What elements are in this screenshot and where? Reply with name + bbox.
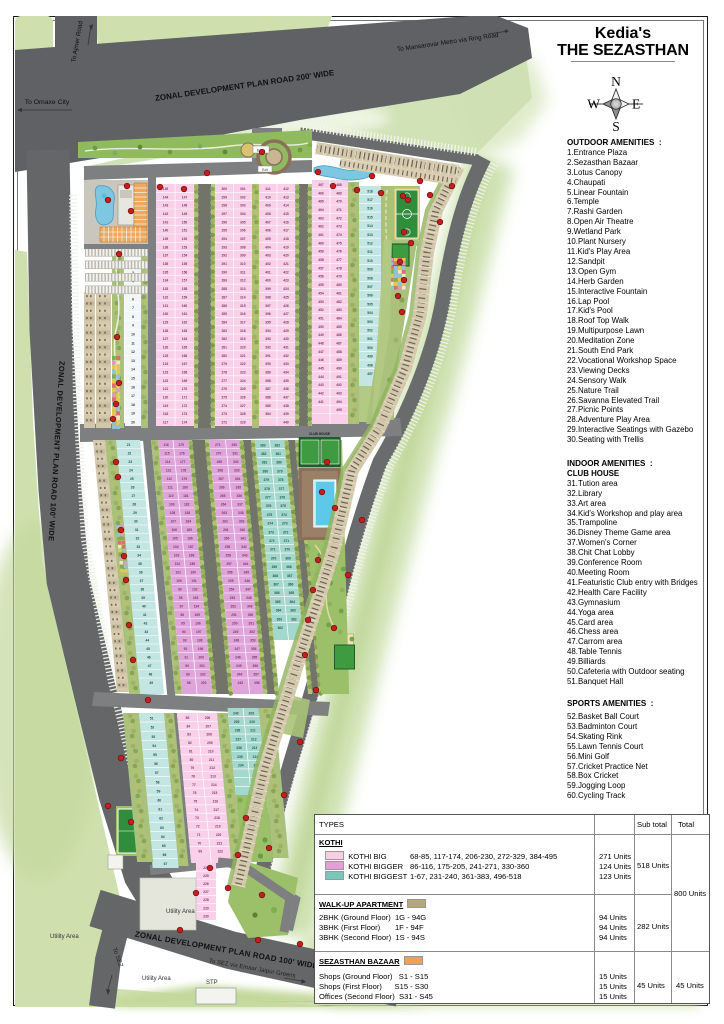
svg-text:508: 508: [367, 276, 373, 280]
svg-text:185: 185: [186, 528, 192, 532]
svg-text:336: 336: [236, 494, 242, 498]
svg-text:71: 71: [197, 833, 201, 837]
svg-text:39: 39: [141, 596, 145, 600]
svg-text:63: 63: [160, 826, 164, 830]
svg-text:199: 199: [198, 647, 204, 651]
svg-text:378: 378: [264, 487, 270, 491]
svg-text:151: 151: [182, 229, 188, 233]
svg-text:Exit: Exit: [262, 168, 268, 172]
svg-text:512: 512: [367, 242, 373, 246]
svg-text:277: 277: [221, 379, 227, 383]
svg-text:35: 35: [138, 562, 142, 566]
svg-text:24: 24: [129, 469, 133, 473]
svg-text:230: 230: [203, 914, 209, 918]
svg-text:378: 378: [278, 478, 284, 482]
svg-text:165: 165: [182, 346, 188, 350]
svg-text:332: 332: [233, 460, 239, 464]
svg-text:494: 494: [336, 400, 342, 404]
svg-text:125: 125: [163, 354, 169, 358]
svg-text:106: 106: [171, 528, 177, 532]
svg-text:236: 236: [236, 746, 242, 750]
svg-text:60: 60: [157, 799, 161, 803]
svg-text:44: 44: [145, 639, 149, 643]
svg-text:29: 29: [133, 511, 137, 515]
svg-text:64: 64: [161, 835, 165, 839]
svg-text:411: 411: [265, 187, 270, 191]
svg-text:100: 100: [176, 579, 182, 583]
svg-text:450: 450: [318, 325, 324, 329]
svg-text:244: 244: [237, 673, 243, 677]
svg-text:275: 275: [221, 396, 227, 400]
svg-text:180: 180: [182, 486, 188, 490]
svg-text:28: 28: [132, 503, 136, 507]
svg-text:467: 467: [318, 183, 324, 187]
svg-text:267: 267: [218, 477, 224, 481]
svg-text:141: 141: [163, 220, 169, 224]
svg-text:109: 109: [169, 503, 175, 507]
svg-text:159: 159: [182, 295, 188, 299]
svg-text:128: 128: [163, 329, 169, 333]
svg-text:314: 314: [240, 295, 246, 299]
svg-text:503: 503: [367, 320, 373, 324]
svg-text:440: 440: [283, 421, 289, 425]
svg-text:517: 517: [367, 198, 373, 202]
svg-text:214: 214: [211, 783, 217, 787]
svg-text:219: 219: [215, 825, 221, 829]
svg-text:328: 328: [240, 412, 246, 416]
svg-text:13: 13: [131, 359, 135, 363]
svg-text:245: 245: [236, 664, 242, 668]
svg-text:195: 195: [194, 613, 200, 617]
svg-text:37: 37: [140, 579, 144, 583]
svg-text:475: 475: [336, 241, 342, 245]
svg-text:186: 186: [187, 537, 193, 541]
svg-text:188: 188: [189, 554, 195, 558]
svg-text:268: 268: [218, 469, 224, 473]
svg-text:518: 518: [367, 189, 373, 193]
svg-text:31: 31: [135, 528, 139, 532]
svg-text:251: 251: [231, 613, 237, 617]
svg-text:9: 9: [132, 324, 134, 328]
svg-text:210: 210: [249, 720, 255, 724]
svg-text:471: 471: [336, 208, 342, 212]
svg-text:381: 381: [275, 452, 281, 456]
svg-text:326: 326: [240, 396, 246, 400]
svg-text:33: 33: [136, 545, 140, 549]
svg-text:118: 118: [163, 412, 168, 416]
svg-text:145: 145: [163, 187, 169, 191]
svg-text:56: 56: [154, 762, 158, 766]
svg-text:264: 264: [221, 503, 227, 507]
svg-text:462: 462: [318, 225, 324, 229]
svg-text:421: 421: [283, 262, 289, 266]
svg-text:75: 75: [194, 800, 198, 804]
svg-text:26: 26: [131, 486, 135, 490]
svg-text:58: 58: [156, 780, 160, 784]
svg-text:252: 252: [230, 605, 236, 609]
svg-text:483: 483: [336, 308, 342, 312]
svg-text:23: 23: [128, 460, 132, 464]
svg-text:308: 308: [240, 245, 246, 249]
svg-text:240: 240: [233, 711, 239, 715]
svg-text:347: 347: [245, 588, 251, 592]
svg-text:345: 345: [244, 571, 250, 575]
svg-text:164: 164: [182, 337, 188, 341]
svg-text:228: 228: [203, 898, 209, 902]
svg-text:397: 397: [265, 304, 271, 308]
svg-text:386: 386: [265, 396, 271, 400]
svg-text:307: 307: [240, 237, 246, 241]
svg-text:S: S: [612, 119, 620, 134]
svg-text:444: 444: [318, 375, 324, 379]
svg-text:207: 207: [206, 724, 212, 728]
svg-text:W: W: [587, 97, 600, 112]
svg-text:54: 54: [152, 744, 156, 748]
svg-text:463: 463: [318, 216, 324, 220]
svg-text:278: 278: [221, 371, 227, 375]
svg-text:36: 36: [139, 571, 143, 575]
svg-text:69: 69: [198, 850, 202, 854]
svg-text:415: 415: [283, 212, 289, 216]
svg-text:167: 167: [182, 362, 188, 366]
svg-text:281: 281: [221, 346, 227, 350]
svg-text:373: 373: [268, 530, 274, 534]
svg-text:289: 289: [221, 279, 227, 283]
svg-text:248: 248: [234, 639, 240, 643]
svg-text:376: 376: [266, 504, 272, 508]
svg-text:305: 305: [240, 220, 246, 224]
svg-text:402: 402: [265, 262, 271, 266]
svg-text:107: 107: [171, 520, 177, 524]
svg-text:155: 155: [182, 262, 188, 266]
svg-text:196: 196: [195, 622, 201, 626]
svg-text:435: 435: [283, 379, 289, 383]
svg-text:291: 291: [221, 262, 227, 266]
svg-text:468: 468: [336, 183, 342, 187]
svg-text:17: 17: [131, 394, 135, 398]
svg-text:211: 211: [250, 729, 255, 733]
svg-text:346: 346: [245, 579, 251, 583]
svg-text:355: 355: [252, 656, 258, 660]
svg-text:273: 273: [221, 412, 227, 416]
svg-text:376: 376: [280, 496, 286, 500]
svg-text:235: 235: [237, 755, 243, 759]
svg-text:237: 237: [236, 737, 242, 741]
svg-text:340: 340: [240, 528, 246, 532]
svg-text:470: 470: [336, 200, 342, 204]
svg-text:250: 250: [232, 622, 238, 626]
svg-text:190: 190: [190, 571, 196, 575]
svg-text:To Omaxe City: To Omaxe City: [25, 99, 70, 106]
svg-text:263: 263: [222, 511, 228, 515]
svg-text:265: 265: [220, 494, 226, 498]
svg-text:287: 287: [221, 295, 227, 299]
svg-text:103: 103: [174, 554, 180, 558]
svg-text:211: 211: [209, 758, 214, 762]
svg-text:22: 22: [128, 452, 132, 456]
svg-text:200: 200: [199, 656, 205, 660]
svg-text:95: 95: [181, 622, 185, 626]
svg-text:431: 431: [283, 346, 289, 350]
svg-text:147: 147: [182, 195, 188, 199]
svg-text:403: 403: [265, 254, 271, 258]
svg-text:338: 338: [238, 511, 244, 515]
svg-text:123: 123: [163, 371, 169, 375]
svg-text:383: 383: [260, 443, 266, 447]
svg-text:140: 140: [163, 229, 169, 233]
svg-text:142: 142: [163, 212, 169, 216]
svg-text:413: 413: [283, 195, 289, 199]
svg-text:343: 343: [242, 554, 248, 558]
svg-text:114: 114: [165, 460, 170, 464]
svg-text:412: 412: [283, 187, 289, 191]
svg-text:382: 382: [275, 443, 281, 447]
svg-text:280: 280: [221, 354, 227, 358]
svg-text:48: 48: [149, 673, 153, 677]
svg-text:457: 457: [318, 266, 324, 270]
svg-text:93: 93: [183, 639, 187, 643]
svg-text:208: 208: [206, 733, 212, 737]
svg-text:43: 43: [144, 630, 148, 634]
svg-text:53: 53: [151, 735, 155, 739]
svg-text:137: 137: [163, 254, 169, 258]
svg-text:101: 101: [175, 571, 181, 575]
svg-text:392: 392: [265, 346, 271, 350]
svg-text:309: 309: [240, 254, 246, 258]
svg-text:288: 288: [221, 287, 227, 291]
svg-text:249: 249: [233, 630, 239, 634]
svg-text:E: E: [632, 97, 640, 112]
svg-text:129: 129: [163, 320, 169, 324]
svg-text:72: 72: [196, 825, 200, 829]
svg-text:487: 487: [336, 342, 342, 346]
svg-text:357: 357: [253, 673, 259, 677]
svg-text:62: 62: [159, 817, 163, 821]
svg-text:348: 348: [246, 596, 252, 600]
svg-text:189: 189: [190, 562, 196, 566]
svg-text:369: 369: [285, 556, 291, 560]
svg-text:448: 448: [318, 342, 324, 346]
svg-text:179: 179: [182, 477, 188, 481]
svg-text:285: 285: [221, 312, 227, 316]
svg-text:365: 365: [289, 591, 295, 595]
svg-text:366: 366: [288, 583, 294, 587]
svg-text:374: 374: [268, 522, 274, 526]
svg-text:379: 379: [277, 469, 283, 473]
svg-text:CLUB HOUSE: CLUB HOUSE: [309, 432, 330, 436]
svg-text:89: 89: [186, 673, 190, 677]
svg-text:382: 382: [261, 452, 267, 456]
svg-text:362: 362: [277, 626, 283, 630]
svg-text:516: 516: [367, 207, 373, 211]
svg-text:209: 209: [249, 711, 255, 715]
svg-text:424: 424: [283, 287, 289, 291]
svg-text:18: 18: [131, 403, 135, 407]
svg-text:492: 492: [336, 383, 342, 387]
svg-text:198: 198: [197, 639, 203, 643]
svg-text:306: 306: [240, 229, 246, 233]
svg-text:445: 445: [318, 367, 324, 371]
svg-text:295: 295: [221, 229, 227, 233]
svg-text:324: 324: [240, 379, 246, 383]
svg-text:206: 206: [205, 716, 211, 720]
svg-text:197: 197: [196, 630, 202, 634]
svg-text:184: 184: [186, 520, 192, 524]
svg-text:213: 213: [252, 746, 258, 750]
svg-text:286: 286: [221, 304, 227, 308]
svg-text:218: 218: [214, 816, 220, 820]
svg-text:461: 461: [318, 233, 324, 237]
svg-text:16: 16: [131, 385, 135, 389]
svg-text:11: 11: [131, 341, 135, 345]
svg-text:66: 66: [163, 853, 167, 857]
svg-text:437: 437: [283, 396, 289, 400]
svg-text:262: 262: [222, 520, 228, 524]
svg-text:489: 489: [336, 358, 342, 362]
svg-text:312: 312: [240, 279, 246, 283]
svg-text:150: 150: [182, 220, 188, 224]
svg-text:459: 459: [318, 250, 324, 254]
svg-text:260: 260: [224, 537, 230, 541]
svg-text:212: 212: [251, 737, 257, 741]
svg-text:253: 253: [230, 596, 236, 600]
svg-text:Utility Area: Utility Area: [166, 909, 195, 915]
svg-text:258: 258: [226, 554, 232, 558]
svg-text:38: 38: [140, 588, 144, 592]
svg-text:N: N: [611, 74, 621, 89]
svg-text:381: 381: [262, 461, 268, 465]
svg-text:261: 261: [223, 528, 229, 532]
svg-text:420: 420: [283, 254, 289, 258]
svg-text:227: 227: [203, 890, 209, 894]
svg-text:171: 171: [182, 396, 188, 400]
svg-text:194: 194: [194, 605, 200, 609]
svg-text:482: 482: [336, 300, 342, 304]
svg-text:78: 78: [191, 775, 195, 779]
svg-text:175: 175: [178, 443, 184, 447]
svg-text:157: 157: [182, 279, 188, 283]
svg-text:429: 429: [283, 329, 289, 333]
svg-text:455: 455: [318, 283, 324, 287]
svg-text:74: 74: [194, 808, 198, 812]
svg-text:466: 466: [318, 191, 324, 195]
svg-text:15: 15: [131, 377, 135, 381]
svg-text:46: 46: [147, 656, 151, 660]
svg-text:209: 209: [207, 741, 213, 745]
svg-text:153: 153: [182, 245, 188, 249]
svg-text:276: 276: [221, 387, 227, 391]
svg-text:318: 318: [240, 329, 246, 333]
svg-text:290: 290: [221, 270, 227, 274]
svg-text:131: 131: [163, 304, 169, 308]
svg-text:104: 104: [173, 545, 179, 549]
svg-text:257: 257: [226, 562, 232, 566]
svg-text:138: 138: [163, 245, 169, 249]
svg-text:85: 85: [186, 716, 190, 720]
svg-text:243: 243: [238, 681, 244, 685]
svg-text:478: 478: [336, 266, 342, 270]
svg-text:353: 353: [250, 639, 256, 643]
svg-text:504: 504: [367, 311, 373, 315]
svg-text:192: 192: [192, 588, 198, 592]
svg-text:377: 377: [265, 496, 271, 500]
svg-text:367: 367: [287, 574, 293, 578]
svg-text:481: 481: [336, 291, 342, 295]
svg-text:70: 70: [198, 841, 202, 845]
svg-text:456: 456: [318, 275, 324, 279]
svg-text:363: 363: [290, 609, 296, 613]
svg-text:148: 148: [182, 204, 188, 208]
svg-text:465: 465: [318, 200, 324, 204]
svg-text:84: 84: [186, 724, 190, 728]
svg-text:372: 372: [269, 539, 275, 543]
svg-text:515: 515: [367, 215, 373, 219]
svg-text:417: 417: [283, 229, 289, 233]
svg-text:385: 385: [265, 404, 271, 408]
svg-text:511: 511: [367, 250, 372, 254]
svg-text:270: 270: [216, 452, 222, 456]
svg-text:438: 438: [283, 404, 289, 408]
svg-text:325: 325: [240, 387, 246, 391]
svg-text:116: 116: [163, 443, 168, 447]
svg-text:362: 362: [291, 617, 297, 621]
svg-text:407: 407: [265, 220, 271, 224]
svg-text:315: 315: [240, 304, 246, 308]
svg-text:322: 322: [240, 362, 246, 366]
svg-text:304: 304: [240, 212, 246, 216]
svg-text:111: 111: [168, 486, 173, 490]
svg-text:162: 162: [182, 320, 188, 324]
svg-text:49: 49: [149, 681, 153, 685]
svg-text:432: 432: [283, 354, 289, 358]
svg-text:447: 447: [318, 350, 324, 354]
svg-text:259: 259: [225, 545, 231, 549]
svg-text:21: 21: [127, 443, 131, 447]
svg-text:464: 464: [318, 208, 324, 212]
svg-text:300: 300: [221, 187, 227, 191]
svg-text:446: 446: [318, 358, 324, 362]
svg-text:495: 495: [336, 408, 342, 412]
svg-text:449: 449: [318, 333, 324, 337]
svg-text:40: 40: [142, 605, 146, 609]
svg-text:498: 498: [367, 363, 373, 367]
svg-text:405: 405: [265, 237, 271, 241]
svg-text:395: 395: [265, 320, 271, 324]
svg-text:410: 410: [265, 195, 271, 199]
svg-text:169: 169: [182, 379, 188, 383]
svg-text:61: 61: [158, 808, 162, 812]
svg-text:163: 163: [182, 329, 188, 333]
svg-text:210: 210: [208, 749, 214, 753]
svg-text:216: 216: [213, 800, 219, 804]
svg-text:302: 302: [240, 195, 246, 199]
svg-text:380: 380: [276, 461, 282, 465]
svg-text:96: 96: [180, 613, 184, 617]
svg-text:102: 102: [175, 562, 181, 566]
svg-text:469: 469: [336, 191, 342, 195]
svg-text:20: 20: [131, 421, 135, 425]
svg-text:45: 45: [146, 647, 150, 651]
svg-text:187: 187: [188, 545, 194, 549]
svg-text:51: 51: [150, 717, 154, 721]
svg-text:222: 222: [217, 850, 223, 854]
svg-text:418: 418: [283, 237, 289, 241]
svg-text:426: 426: [283, 304, 289, 308]
svg-text:401: 401: [265, 270, 271, 274]
svg-text:120: 120: [163, 396, 169, 400]
svg-text:388: 388: [265, 379, 271, 383]
svg-text:399: 399: [265, 287, 271, 291]
